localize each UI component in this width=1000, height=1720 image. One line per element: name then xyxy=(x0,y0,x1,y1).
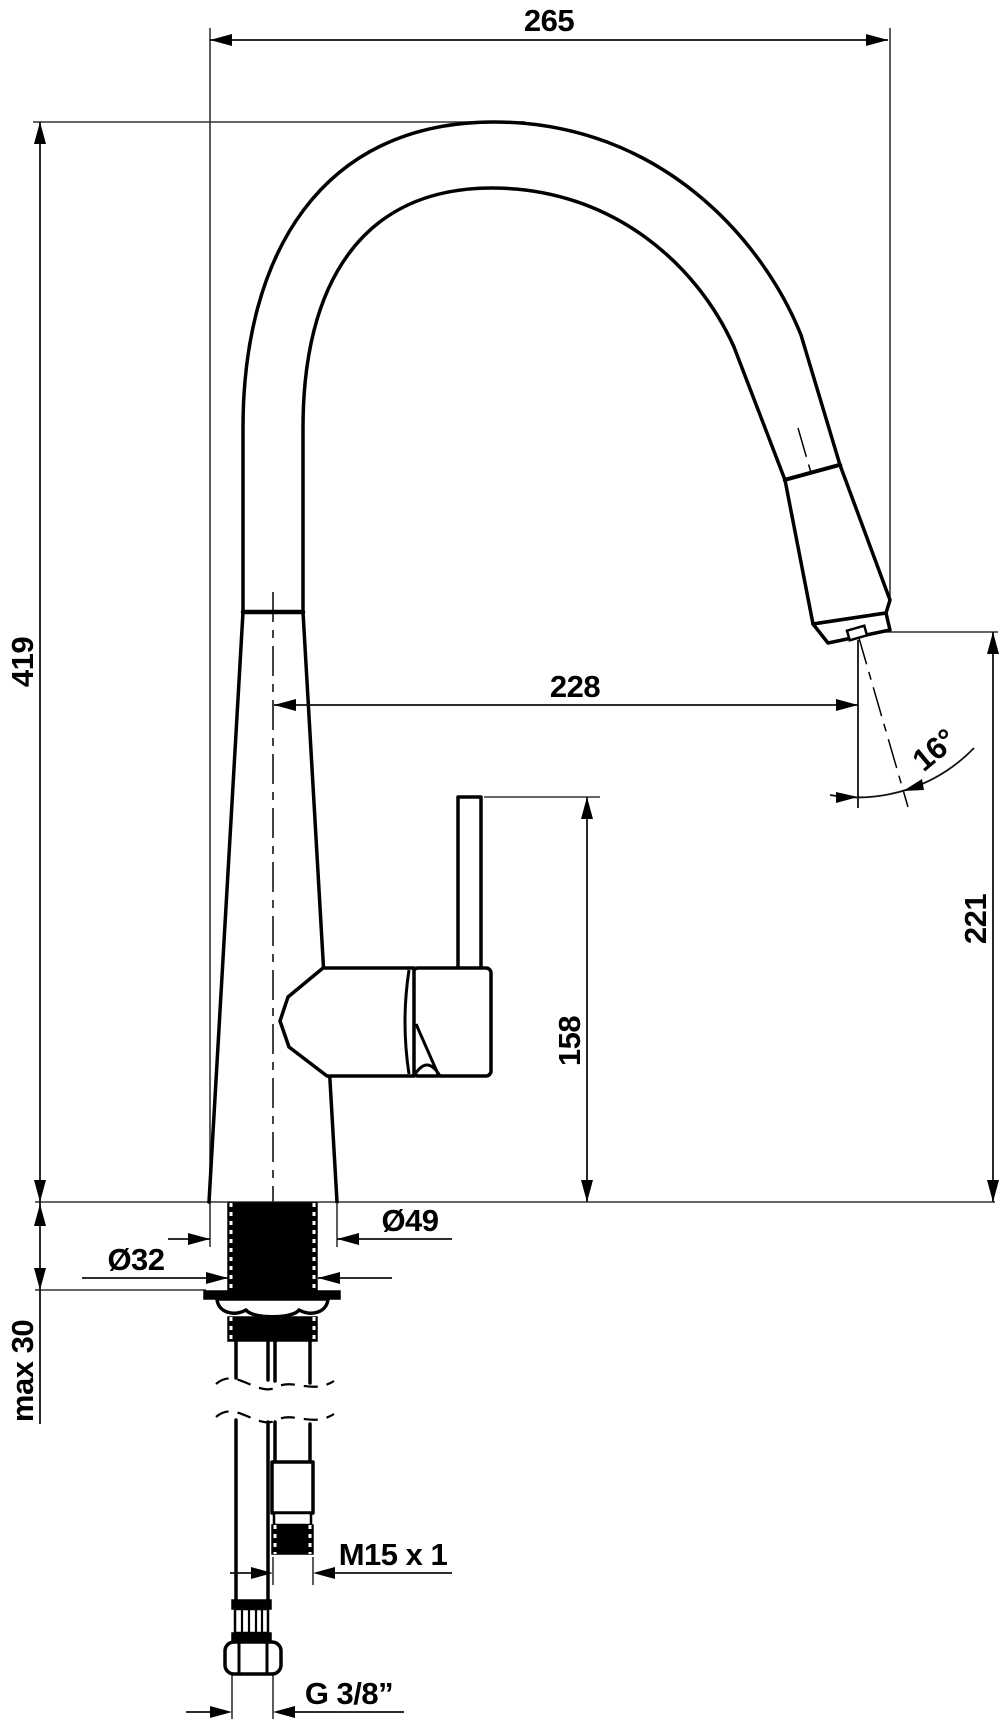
dimension-counter-thickness: max 30 xyxy=(5,1202,46,1424)
arrowhead-left xyxy=(210,34,232,46)
dim-label-lever-height: 158 xyxy=(552,1016,587,1066)
valve-body xyxy=(413,968,491,1076)
arrowhead-bottom xyxy=(34,1180,46,1202)
arrowhead-bottom xyxy=(34,1268,46,1290)
arrowhead-right xyxy=(318,1272,340,1284)
handle-assembly xyxy=(280,797,491,1076)
dim-label-spray-angle: 16° xyxy=(906,722,963,778)
arrowhead-top xyxy=(581,797,593,819)
arrowhead-left xyxy=(188,1233,210,1245)
dim-label-outlet-height: 221 xyxy=(958,894,993,944)
arrowhead-left xyxy=(210,1706,232,1718)
arrowhead-top xyxy=(987,632,999,654)
arrowhead-left xyxy=(274,699,296,711)
scalloped-lock-nut xyxy=(217,1299,328,1317)
dim-label-overall-height: 419 xyxy=(5,637,40,687)
dim-label-supply-hose-thread: G 3/8” xyxy=(305,1676,393,1711)
dim-label-counter-thickness: max 30 xyxy=(5,1320,40,1422)
m15-connector-collar xyxy=(272,1462,313,1513)
dimension-overall-width: 265 xyxy=(210,3,888,46)
drawing-page: 265 419 228 221 158 16° Ø49 xyxy=(0,0,1000,1720)
extension-lines xyxy=(33,28,998,1719)
arrowhead-left xyxy=(206,1272,228,1284)
dim-label-overall-width: 265 xyxy=(524,3,574,38)
dimension-outlet-height: 221 xyxy=(958,632,999,1202)
dimension-spout-reach: 228 xyxy=(274,669,858,711)
arrowhead-right xyxy=(836,699,858,711)
arrowhead-right xyxy=(866,34,888,46)
dimension-lever-height: 158 xyxy=(552,797,593,1202)
arrowhead-top xyxy=(34,122,46,144)
arrowhead-bottom xyxy=(987,1180,999,1202)
valve-cap-cone xyxy=(280,968,414,1076)
m15-thread-section xyxy=(272,1525,313,1554)
spray-hose-upper xyxy=(275,1341,310,1383)
mounting-and-hoses xyxy=(204,1203,340,1674)
dimension-overall-height: 419 xyxy=(5,122,46,1202)
lever-rod xyxy=(458,797,481,969)
m15-connector-band xyxy=(274,1513,311,1525)
dim-label-base-diameter: Ø49 xyxy=(381,1203,438,1238)
dim-label-spray-hose-thread: M15 x 1 xyxy=(339,1537,448,1572)
dim-label-spout-reach: 228 xyxy=(550,669,600,704)
arrowhead-on-vertical xyxy=(836,792,858,803)
spray-hose-lower xyxy=(275,1422,310,1463)
arrowhead-right xyxy=(273,1706,295,1718)
supply-hose-upper xyxy=(236,1341,268,1380)
threaded-shank xyxy=(228,1203,317,1291)
arrowhead-right xyxy=(337,1233,359,1245)
faucet-technical-drawing: 265 419 228 221 158 16° Ø49 xyxy=(0,0,1000,1720)
arrowhead-top xyxy=(34,1204,46,1226)
arrowhead-bottom xyxy=(581,1180,593,1202)
spray-head-cone xyxy=(785,465,890,624)
supply-fitting-band-upper xyxy=(232,1600,271,1609)
lower-thread-block xyxy=(228,1317,317,1341)
arrowhead-right xyxy=(313,1567,335,1579)
dim-label-shank-diameter: Ø32 xyxy=(107,1242,164,1277)
dimension-spray-hose-thread: M15 x 1 xyxy=(230,1537,452,1579)
arrowhead-on-axis xyxy=(903,779,924,791)
dimension-supply-hose-thread: G 3/8” xyxy=(186,1676,404,1718)
g38-hex-nut xyxy=(225,1642,281,1674)
dimension-spray-angle: 16° xyxy=(830,640,974,808)
